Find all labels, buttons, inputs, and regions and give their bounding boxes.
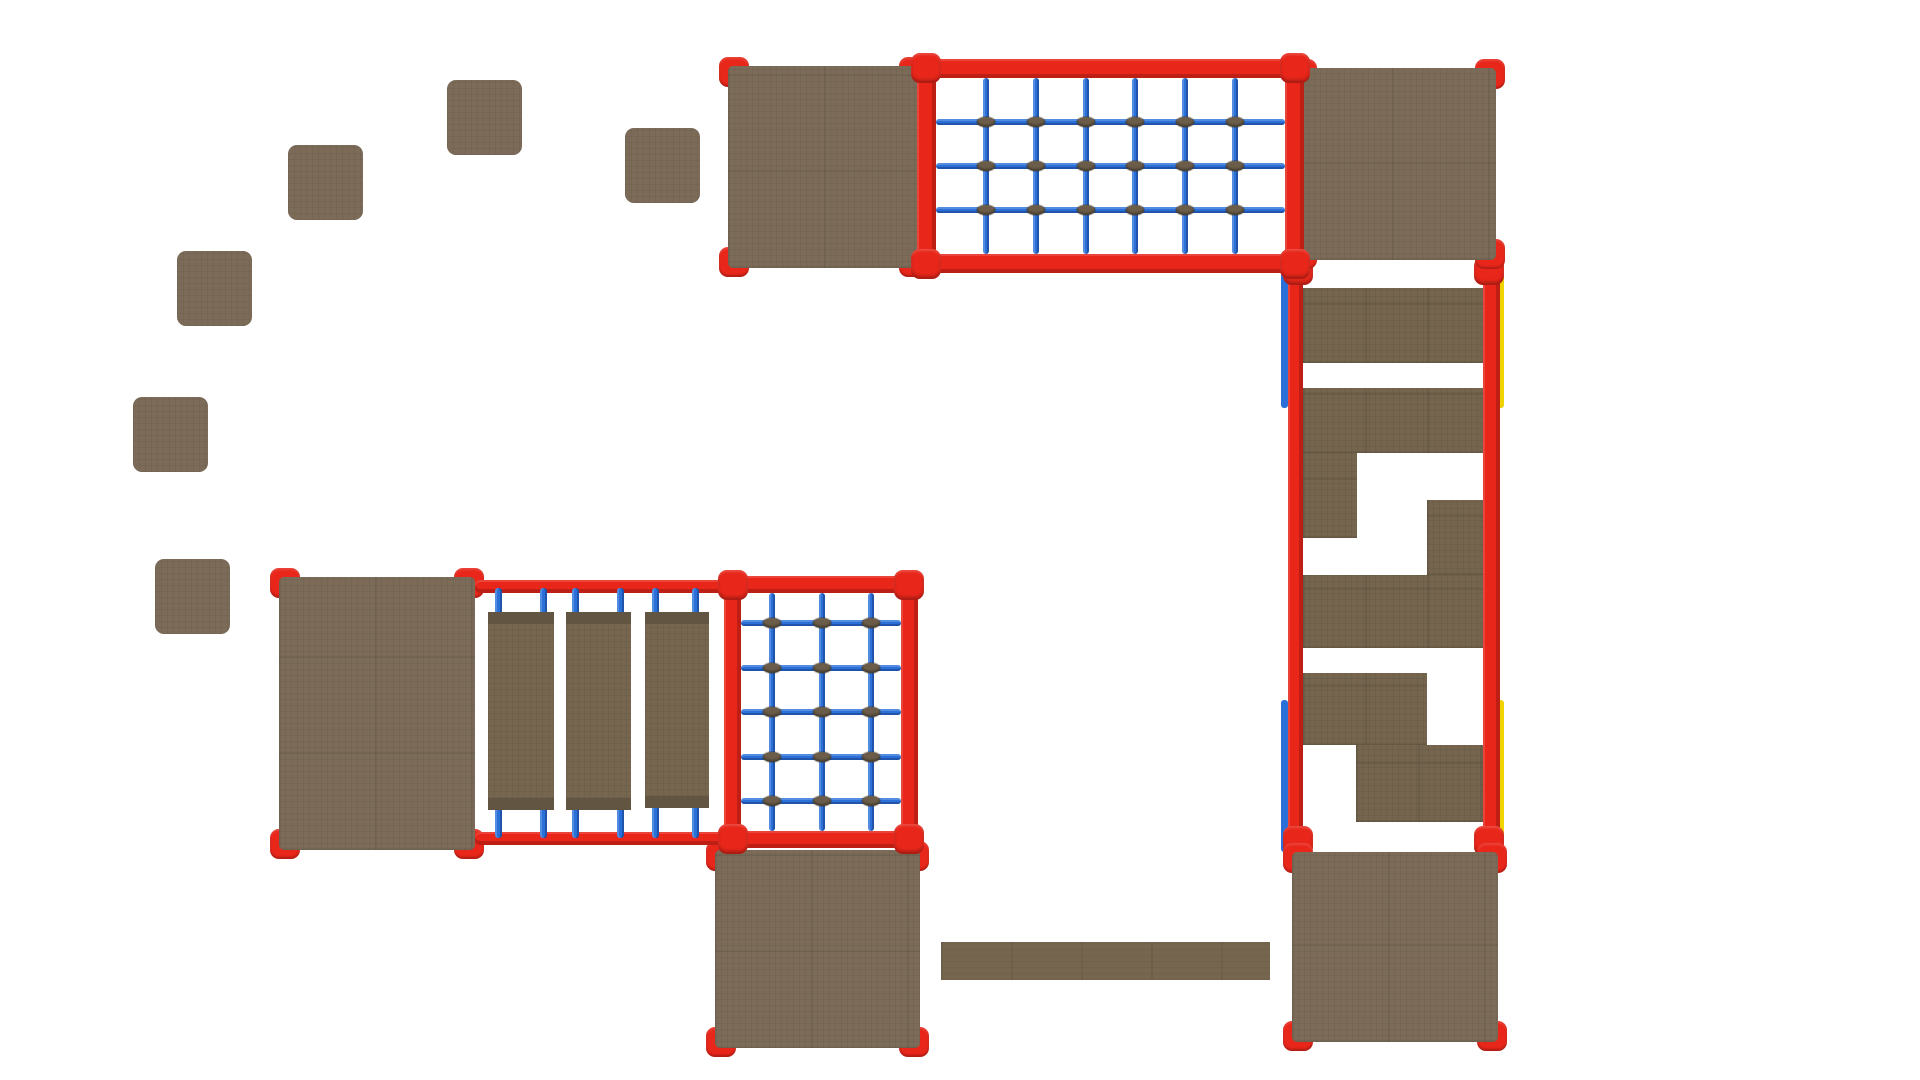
stepping-stone-1 [447, 80, 522, 155]
climbing-net-lower-knot-3-1 [862, 618, 880, 628]
climbing-net-top-knot-1-1 [977, 117, 995, 127]
climbing-net-lower-bar-top [724, 576, 918, 593]
climbing-net-top-bar-top [917, 59, 1304, 78]
bridge-plank-1 [488, 612, 554, 810]
climbing-net-lower-knot-1-3 [763, 707, 781, 717]
climbing-net-lower-knot-1-4 [763, 752, 781, 762]
climbing-net-top-knot-6-2 [1226, 161, 1244, 171]
stepping-stone-2 [288, 145, 363, 220]
climbing-net-top-knot-1-3 [977, 205, 995, 215]
climbing-net-top-corner-connector-2 [1280, 53, 1310, 83]
climbing-net-lower-knot-3-4 [862, 752, 880, 762]
climbing-net-lower-bar-left [724, 576, 741, 848]
climbing-net-top-corner-connector-3 [911, 249, 941, 279]
stepping-stone-5 [133, 397, 208, 472]
climbing-net-lower-corner-connector-1 [718, 570, 748, 600]
climber-rail-right [1483, 261, 1500, 852]
bridge-plank-1-cap-top [488, 612, 554, 624]
climbing-net-top-knot-5-2 [1176, 161, 1194, 171]
climber-step-1 [1303, 288, 1483, 363]
climber-step-4 [1427, 500, 1483, 575]
climbing-net-top-knot-2-2 [1027, 161, 1045, 171]
climbing-net-lower-knot-3-5 [862, 796, 880, 806]
deck-bottom-right [1292, 852, 1498, 1042]
deck-left-large [279, 577, 475, 850]
climbing-net-top-knot-3-3 [1077, 205, 1095, 215]
bridge-plank-3-cap-bottom [645, 796, 709, 808]
bridge-rail-top [475, 580, 727, 593]
climbing-net-top-bar-right [1285, 59, 1304, 273]
bridge-plank-2-cap-top [566, 612, 631, 624]
climbing-net-lower-corner-connector-3 [718, 824, 748, 854]
climbing-net-top-knot-2-3 [1027, 205, 1045, 215]
climbing-net-top-knot-1-2 [977, 161, 995, 171]
bridge-plank-2-cap-bottom [566, 798, 631, 810]
bridge-plank-3 [645, 612, 709, 808]
climber-step-2 [1303, 388, 1483, 453]
climber-step-7 [1356, 745, 1483, 822]
climbing-net-top-knot-6-3 [1226, 205, 1244, 215]
climbing-net-top-knot-5-1 [1176, 117, 1194, 127]
deck-bottom-middle [715, 850, 920, 1048]
climber-step-6 [1303, 673, 1427, 745]
climbing-net-lower-knot-1-5 [763, 796, 781, 806]
climbing-net-lower-knot-3-3 [862, 707, 880, 717]
deck-top-left [728, 66, 920, 268]
climbing-net-top-bar-left [917, 59, 936, 273]
climbing-net-top-knot-6-1 [1226, 117, 1244, 127]
bridge-rail-bottom [475, 832, 727, 845]
climber-step-3 [1303, 453, 1357, 538]
climbing-net-lower-knot-3-2 [862, 663, 880, 673]
climbing-net-top-knot-3-2 [1077, 161, 1095, 171]
climbing-net-top-corner-connector-1 [911, 53, 941, 83]
climbing-net-lower-knot-1-1 [763, 618, 781, 628]
climbing-net-lower-bar-bottom [724, 831, 918, 848]
climbing-net-lower-corner-connector-2 [894, 570, 924, 600]
climbing-net-top-knot-4-2 [1126, 161, 1144, 171]
stepping-stone-3 [625, 128, 700, 203]
balance-beam [941, 942, 1270, 980]
climbing-net-lower-knot-2-2 [813, 663, 831, 673]
climbing-net-lower-knot-2-3 [813, 707, 831, 717]
bridge-plank-3-cap-top [645, 612, 709, 624]
playground-topview-render [0, 0, 1920, 1080]
climbing-net-lower-corner-connector-4 [894, 824, 924, 854]
stepping-stone-6 [155, 559, 230, 634]
climbing-net-top-corner-connector-4 [1280, 249, 1310, 279]
stepping-stone-4 [177, 251, 252, 326]
climber-step-5 [1303, 575, 1483, 648]
climbing-net-top-bar-bottom [917, 254, 1304, 273]
climbing-net-top-knot-4-3 [1126, 205, 1144, 215]
climbing-net-top-knot-3-1 [1077, 117, 1095, 127]
climbing-net-lower-knot-2-5 [813, 796, 831, 806]
climbing-net-top-knot-5-3 [1176, 205, 1194, 215]
climber-rail-left [1288, 261, 1303, 852]
climbing-net-lower-knot-2-4 [813, 752, 831, 762]
climbing-net-lower-bar-right [901, 576, 918, 848]
deck-top-right [1296, 68, 1496, 260]
bridge-plank-2 [566, 612, 631, 810]
bridge-plank-1-cap-bottom [488, 798, 554, 810]
climbing-net-top-knot-2-1 [1027, 117, 1045, 127]
climbing-net-lower-knot-2-1 [813, 618, 831, 628]
climbing-net-lower-knot-1-2 [763, 663, 781, 673]
climbing-net-top-knot-4-1 [1126, 117, 1144, 127]
